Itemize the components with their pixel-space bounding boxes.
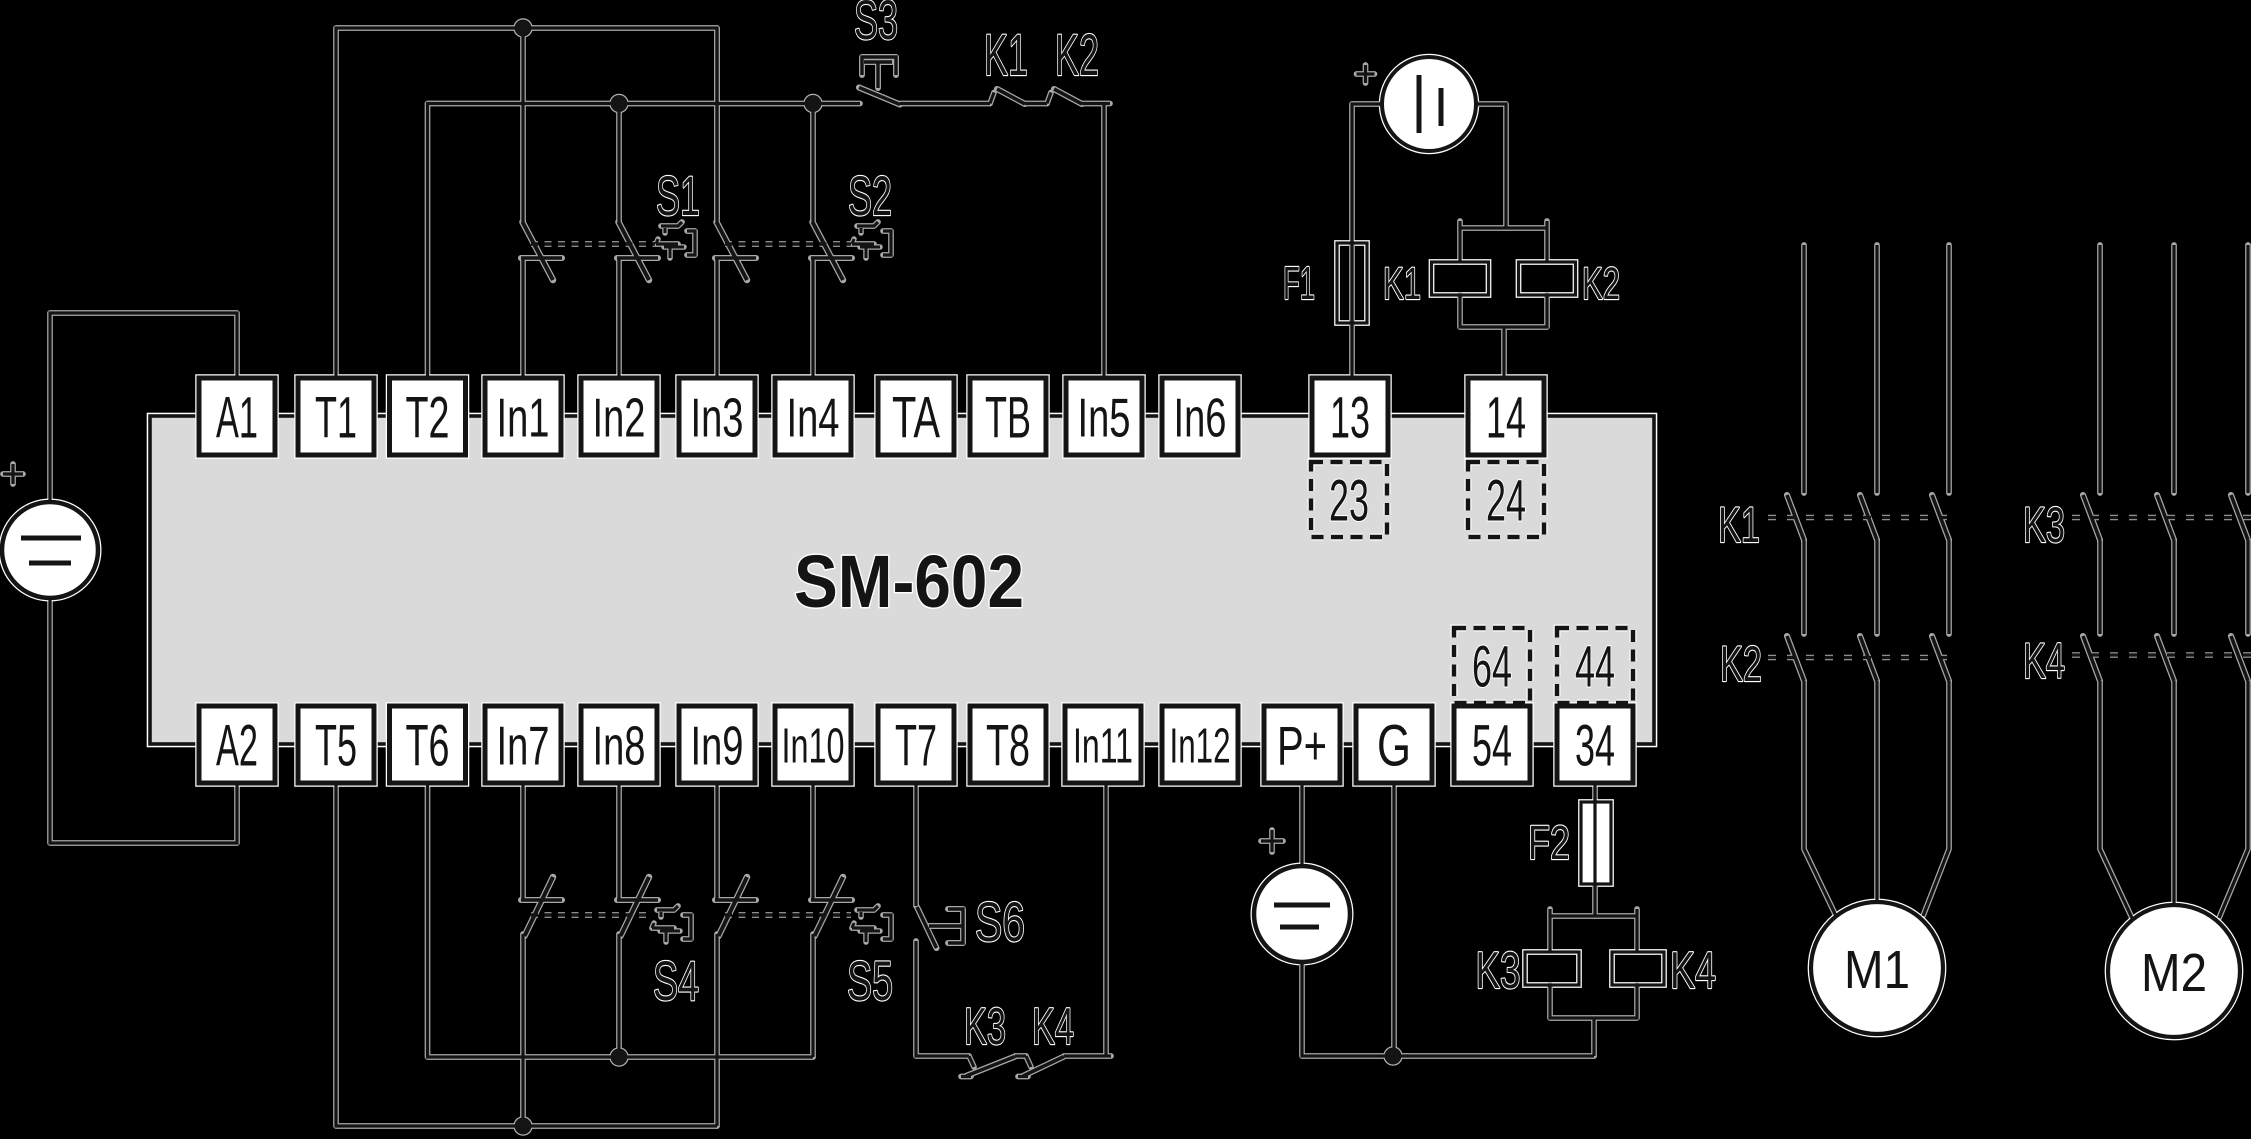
svg-text:S5: S5	[847, 949, 893, 1012]
svg-text:TA: TA	[892, 386, 940, 451]
svg-text:M1: M1	[1844, 940, 1910, 1000]
svg-text:K4: K4	[2023, 633, 2065, 689]
svg-text:24: 24	[1486, 469, 1526, 534]
svg-text:K2: K2	[1582, 258, 1620, 309]
svg-text:T8: T8	[986, 714, 1030, 779]
svg-text:P+: P+	[1277, 715, 1327, 777]
svg-text:44: 44	[1575, 635, 1615, 700]
svg-text:K2: K2	[1055, 23, 1099, 88]
svg-text:SM-602: SM-602	[794, 540, 1024, 623]
svg-text:S2: S2	[848, 164, 892, 227]
svg-text:K2: K2	[1720, 636, 1762, 692]
svg-text:M2: M2	[2141, 943, 2207, 1003]
svg-text:T2: T2	[406, 386, 450, 451]
svg-text:F2: F2	[1528, 817, 1570, 870]
svg-text:In9: In9	[691, 715, 744, 777]
svg-text:G: G	[1377, 714, 1411, 779]
svg-text:TB: TB	[985, 386, 1031, 451]
svg-text:K1: K1	[1718, 497, 1760, 553]
svg-text:K1: K1	[1383, 258, 1421, 309]
svg-text:In4: In4	[787, 387, 840, 449]
svg-text:K3: K3	[964, 998, 1006, 1056]
svg-text:T5: T5	[315, 714, 357, 779]
svg-text:T6: T6	[406, 714, 450, 779]
svg-text:T7: T7	[895, 714, 937, 779]
svg-text:64: 64	[1472, 635, 1512, 700]
svg-text:K1: K1	[984, 23, 1028, 88]
svg-text:T1: T1	[315, 386, 357, 451]
svg-text:In11: In11	[1073, 719, 1133, 773]
svg-text:K3: K3	[1476, 942, 1521, 1000]
svg-text:A1: A1	[216, 386, 258, 451]
svg-text:In6: In6	[1174, 387, 1227, 449]
svg-text:K3: K3	[2023, 497, 2065, 553]
svg-text:A2: A2	[216, 714, 258, 779]
svg-text:In1: In1	[497, 387, 550, 449]
svg-text:In8: In8	[593, 715, 646, 777]
svg-text:23: 23	[1329, 469, 1369, 534]
svg-text:In3: In3	[691, 387, 744, 449]
svg-text:K4: K4	[1032, 998, 1074, 1056]
svg-text:S1: S1	[656, 164, 700, 227]
svg-text:In12: In12	[1170, 719, 1231, 773]
svg-text:S6: S6	[975, 890, 1025, 953]
svg-text:In10: In10	[782, 719, 845, 773]
svg-text:54: 54	[1472, 714, 1512, 779]
svg-text:In2: In2	[593, 387, 646, 449]
svg-text:14: 14	[1486, 386, 1526, 451]
svg-text:In7: In7	[497, 715, 550, 777]
svg-text:S3: S3	[854, 0, 898, 51]
svg-text:13: 13	[1330, 386, 1370, 451]
svg-text:In5: In5	[1078, 387, 1131, 449]
svg-text:34: 34	[1575, 714, 1615, 779]
svg-text:F1: F1	[1283, 257, 1315, 309]
svg-text:K4: K4	[1670, 942, 1716, 1000]
svg-text:S4: S4	[653, 949, 699, 1012]
